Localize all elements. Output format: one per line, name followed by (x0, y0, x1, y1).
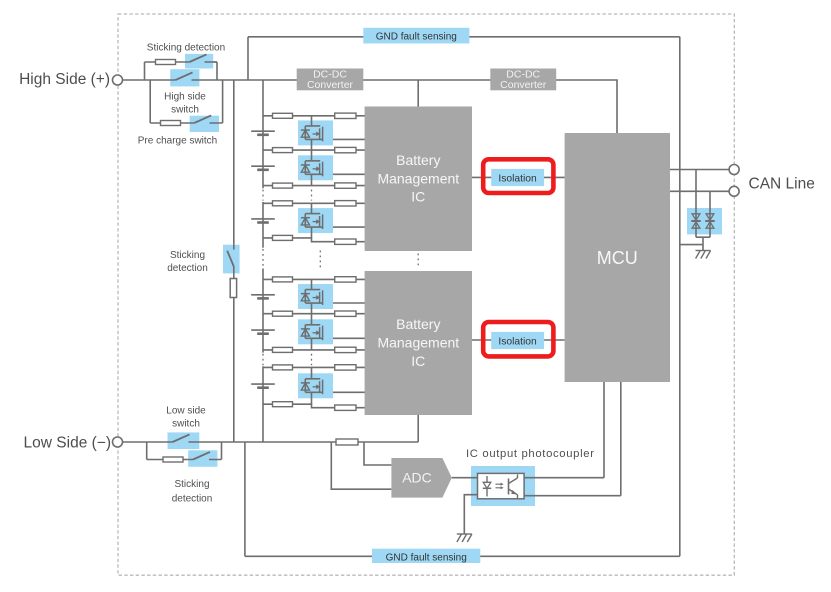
svg-text:Battery: Battery (396, 316, 440, 332)
svg-text:Sticking detection: Sticking detection (147, 43, 225, 54)
svg-text:detection: detection (172, 494, 213, 505)
svg-text:High side: High side (164, 92, 206, 103)
svg-text:GND fault sensing: GND fault sensing (376, 32, 457, 43)
svg-text:Battery: Battery (396, 152, 440, 168)
svg-text:Converter: Converter (500, 79, 547, 91)
svg-text:Management: Management (377, 170, 459, 186)
svg-text:GND fault sensing: GND fault sensing (386, 553, 467, 564)
svg-text:CAN Line: CAN Line (749, 175, 815, 192)
svg-text:switch: switch (172, 419, 200, 430)
svg-text:IC output photocoupler: IC output photocoupler (466, 448, 595, 460)
svg-text:Management: Management (377, 335, 459, 351)
svg-text:High Side (+): High Side (+) (19, 71, 110, 88)
svg-text:ADC: ADC (402, 470, 432, 486)
svg-text:IC: IC (411, 353, 425, 369)
svg-text:MCU: MCU (597, 248, 638, 268)
svg-text:detection: detection (167, 263, 208, 274)
svg-text:IC: IC (411, 189, 425, 205)
svg-text:Sticking: Sticking (174, 479, 209, 490)
svg-text:switch: switch (171, 105, 199, 116)
svg-text:Isolation: Isolation (498, 336, 537, 347)
svg-text:Converter: Converter (307, 79, 354, 91)
svg-text:Sticking: Sticking (170, 250, 205, 261)
svg-text:Low side: Low side (166, 406, 206, 417)
svg-text:Isolation: Isolation (498, 173, 537, 184)
svg-text:Low Side (−): Low Side (−) (24, 434, 111, 451)
svg-text:Pre charge switch: Pre charge switch (138, 136, 217, 147)
